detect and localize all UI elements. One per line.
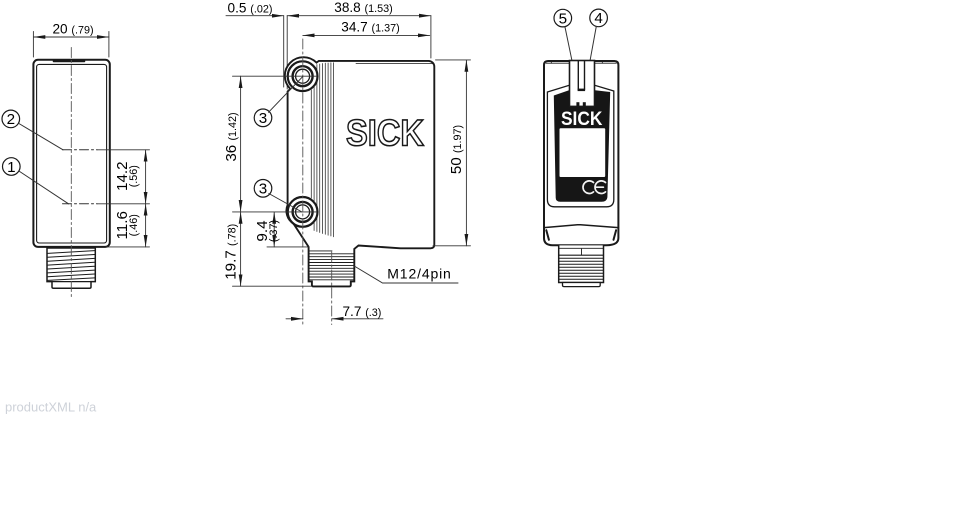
svg-text:productXML n/a: productXML n/a (5, 400, 97, 415)
svg-text:M12/4pin: M12/4pin (387, 265, 451, 281)
svg-text:11.6(.46): 11.6(.46) (114, 211, 140, 239)
svg-text:SICK: SICK (346, 113, 424, 154)
svg-text:38.8 (1.53): 38.8 (1.53) (334, 0, 392, 15)
svg-text:36 (1.42): 36 (1.42) (223, 112, 240, 161)
svg-text:7.7 (.3): 7.7 (.3) (343, 304, 382, 319)
svg-text:50 (1.97): 50 (1.97) (448, 125, 465, 174)
svg-text:20 (.79): 20 (.79) (52, 22, 93, 37)
svg-text:1: 1 (7, 159, 15, 176)
svg-text:19.7 (.78): 19.7 (.78) (223, 224, 240, 280)
svg-text:9.4(.37): 9.4(.37) (254, 220, 280, 242)
svg-text:3: 3 (259, 181, 267, 198)
svg-text:14.2(.56): 14.2(.56) (114, 161, 140, 191)
svg-text:0.5 (.02): 0.5 (.02) (228, 0, 273, 15)
svg-text:SICK: SICK (561, 109, 603, 130)
svg-text:34.7 (1.37): 34.7 (1.37) (341, 20, 399, 35)
svg-text:3: 3 (259, 110, 267, 127)
svg-text:4: 4 (594, 10, 602, 27)
svg-text:2: 2 (7, 111, 15, 128)
svg-text:5: 5 (559, 10, 567, 27)
